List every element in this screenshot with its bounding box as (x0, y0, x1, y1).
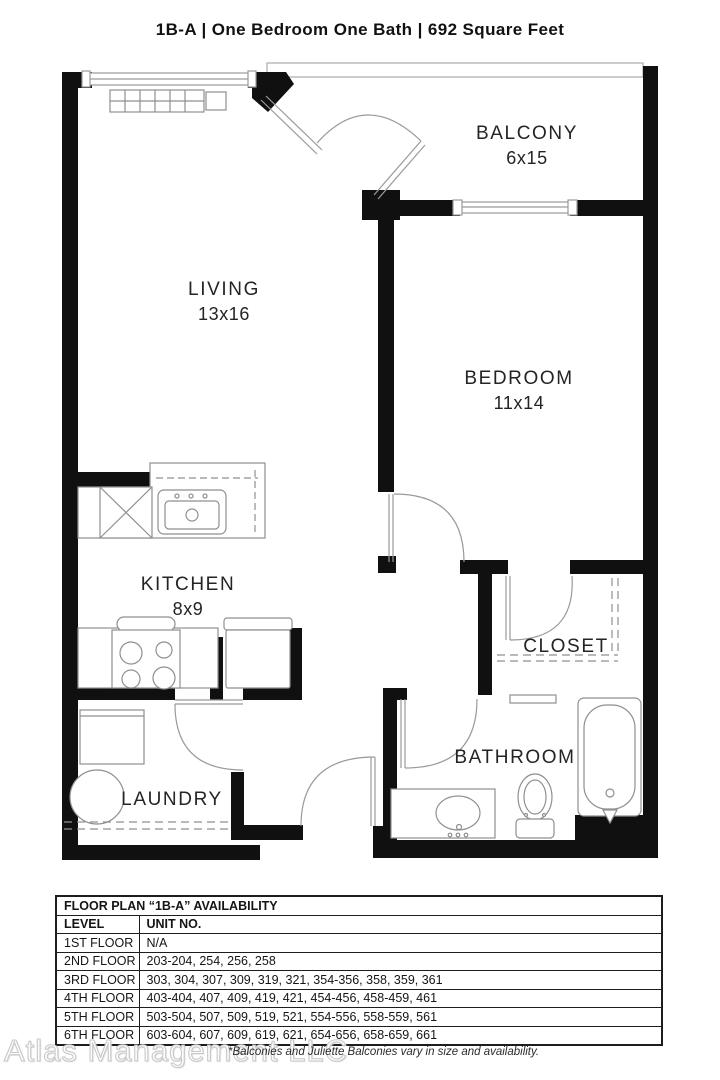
wall-right-outer (643, 66, 658, 858)
wall-closet-top-right (570, 560, 643, 574)
dishwasher (100, 487, 152, 538)
stove (112, 617, 180, 689)
table-title: FLOOR PLAN “1B-A” AVAILABILITY (56, 896, 662, 915)
laundry-basin (70, 770, 124, 824)
toilet (516, 774, 554, 838)
wall-hall-bottom-left (231, 825, 303, 840)
label-bedroom-dims: 11x14 (494, 393, 545, 413)
hall-door-arc (301, 757, 375, 826)
units-cell: N/A (139, 934, 662, 953)
kitchen-sink (158, 490, 226, 534)
closet-door-arc (510, 576, 572, 640)
level-cell: 4TH FLOOR (56, 989, 139, 1008)
entry-door-arc (317, 115, 421, 143)
bedroom-door-arc (394, 494, 464, 562)
col-header-units: UNIT NO. (139, 915, 662, 934)
label-balcony: BALCONY (476, 123, 578, 144)
bathtub (578, 698, 641, 823)
label-bathroom: BATHROOM (454, 747, 575, 768)
wall-kitchen-bottom-left (62, 688, 175, 700)
towel-bar (510, 695, 556, 703)
wall-left-outer (62, 72, 78, 860)
level-cell: 2ND FLOOR (56, 952, 139, 971)
label-living-dims: 13x16 (198, 304, 250, 324)
balcony-disclaimer-note: *Balconies and Juliette Balconies vary i… (228, 1046, 539, 1058)
wall-counter-stub (62, 472, 150, 487)
units-cell: 203-204, 254, 256, 258 (139, 952, 662, 971)
label-kitchen: KITCHEN (141, 574, 236, 595)
bedroom-door (389, 494, 464, 562)
closet-door (506, 576, 572, 640)
level-cell: 3RD FLOOR (56, 971, 139, 990)
label-living: LIVING (188, 279, 260, 300)
table-row: 5TH FLOOR 503-504, 507, 509, 519, 521, 5… (56, 1008, 662, 1027)
level-cell: 1ST FLOOR (56, 934, 139, 953)
wall-laundry-right (231, 772, 244, 830)
table-row: 2ND FLOOR 203-204, 254, 256, 258 (56, 952, 662, 971)
refrigerator (224, 618, 292, 688)
wall-bedroom-left (378, 200, 394, 492)
wall-tub-corner (575, 815, 658, 858)
laundry-door (175, 700, 243, 770)
entry-door (261, 96, 425, 199)
wall-kitchen-bottom-stub (243, 688, 302, 700)
wall-balcony-bottom-right (570, 200, 643, 216)
laundry-door-arc (175, 704, 243, 770)
table-title-row: FLOOR PLAN “1B-A” AVAILABILITY (56, 896, 662, 915)
bathroom-vanity (391, 789, 495, 838)
wall-entry-chamfer (252, 72, 294, 112)
label-bedroom: BEDROOM (464, 368, 573, 389)
level-cell: 5TH FLOOR (56, 1008, 139, 1027)
balcony-railing (267, 63, 643, 77)
table-header-row: LEVEL UNIT NO. (56, 915, 662, 934)
availability-table: FLOOR PLAN “1B-A” AVAILABILITY LEVEL UNI… (55, 895, 663, 1046)
units-cell: 503-504, 507, 509, 519, 521, 554-556, 55… (139, 1008, 662, 1027)
table-row: 1ST FLOOR N/A (56, 934, 662, 953)
label-balcony-dims: 6x15 (506, 148, 547, 168)
label-kitchen-dims: 8x9 (173, 599, 204, 619)
flyer-page: 1B-A | One Bedroom One Bath | 692 Square… (0, 0, 720, 1080)
units-cell: 403-404, 407, 409, 419, 421, 454-456, 45… (139, 989, 662, 1008)
label-closet: CLOSET (523, 636, 609, 657)
table-row: 4TH FLOOR 403-404, 407, 409, 419, 421, 4… (56, 989, 662, 1008)
col-header-level: LEVEL (56, 915, 139, 934)
hall-door (301, 757, 375, 826)
baseboard-heater (110, 90, 226, 112)
wall-laundry-bottom (62, 845, 260, 860)
living-window (82, 71, 256, 87)
units-cell: 303, 304, 307, 309, 319, 321, 354-356, 3… (139, 971, 662, 990)
label-laundry: LAUNDRY (121, 789, 223, 810)
wall-closet-left (478, 560, 492, 695)
bedroom-window (453, 200, 577, 215)
table-row: 3RD FLOOR 303, 304, 307, 309, 319, 321, … (56, 971, 662, 990)
